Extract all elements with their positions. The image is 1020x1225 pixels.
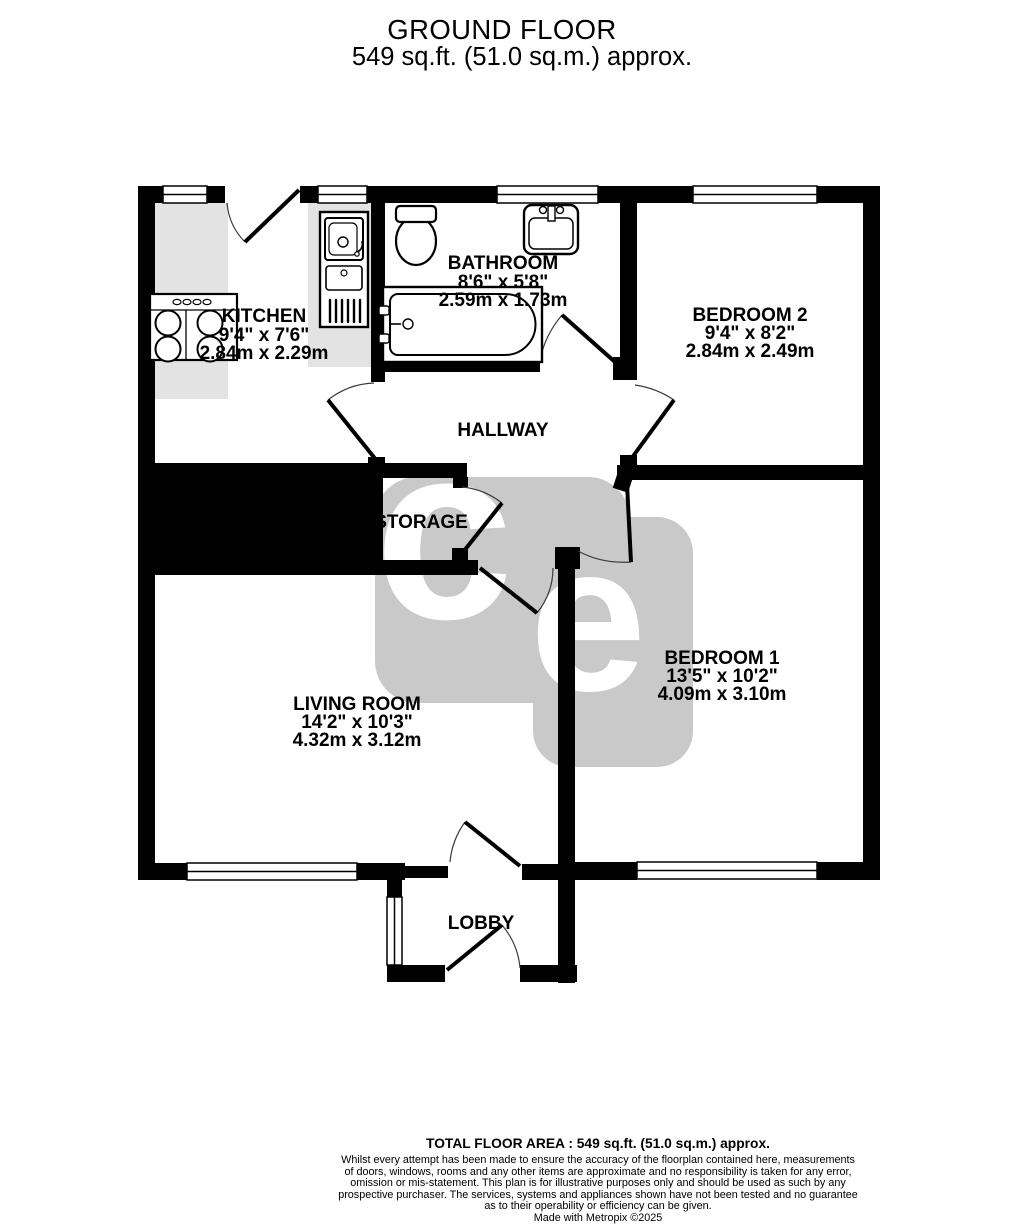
- total-floor-area: TOTAL FLOOR AREA : 549 sq.ft. (51.0 sq.m…: [98, 1136, 1020, 1151]
- lobby-passage-door: [450, 822, 520, 866]
- bedroom2-door: [631, 385, 674, 459]
- svg-text:2.84m x 2.29m: 2.84m x 2.29m: [200, 343, 329, 364]
- svg-text:KITCHEN: KITCHEN: [222, 306, 306, 327]
- bedroom2-label: BEDROOM 2 9'4" x 8'2" 2.84m x 2.49m: [686, 305, 815, 362]
- metropix-credit: Made with Metropix ©2025: [98, 1213, 1020, 1225]
- kitchen-door: [328, 383, 377, 461]
- svg-text:LOBBY: LOBBY: [448, 913, 515, 934]
- hallway-label: HALLWAY: [457, 420, 548, 441]
- bedroom1-label: BEDROOM 1 13'5" x 10'2" 4.09m x 3.10m: [658, 648, 787, 705]
- metropix-watermark: c e: [374, 392, 693, 767]
- disclaimer-line: Whilst every attempt has been made to en…: [98, 1155, 1020, 1167]
- lobby-label: LOBBY: [448, 913, 515, 934]
- living-room-label: LIVING ROOM 14'2" x 10'3" 4.32m x 3.12m: [293, 694, 422, 751]
- kitchen-window: [163, 186, 207, 203]
- kitchen-sink-window: [318, 186, 367, 203]
- svg-text:2.84m x 2.49m: 2.84m x 2.49m: [686, 341, 815, 362]
- lobby-window: [387, 897, 402, 965]
- bathroom-sink-icon: [524, 205, 578, 254]
- floorplan: c e: [0, 0, 1020, 1216]
- bedroom2-window: [693, 186, 817, 203]
- disclaimer: Whilst every attempt has been made to en…: [98, 1155, 1020, 1225]
- bathroom-label: BATHROOM 8'6" x 5'8" 2.59m x 1.73m: [439, 253, 568, 311]
- back-door: [227, 190, 299, 242]
- storage-label: STORAGE: [374, 512, 468, 533]
- svg-text:4.09m x 3.10m: 4.09m x 3.10m: [658, 684, 787, 705]
- svg-text:HALLWAY: HALLWAY: [457, 420, 548, 441]
- bathroom-window: [497, 186, 598, 203]
- svg-text:BATHROOM: BATHROOM: [448, 253, 558, 274]
- kitchen-sink-icon: [320, 212, 368, 327]
- svg-text:2.59m x 1.73m: 2.59m x 1.73m: [439, 290, 568, 311]
- svg-text:STORAGE: STORAGE: [374, 512, 468, 533]
- svg-text:4.32m x 3.12m: 4.32m x 3.12m: [293, 730, 422, 751]
- toilet-icon: [396, 206, 436, 265]
- bedroom1-window: [637, 862, 817, 879]
- bathroom-door: [540, 315, 615, 362]
- living-room-window: [187, 863, 357, 880]
